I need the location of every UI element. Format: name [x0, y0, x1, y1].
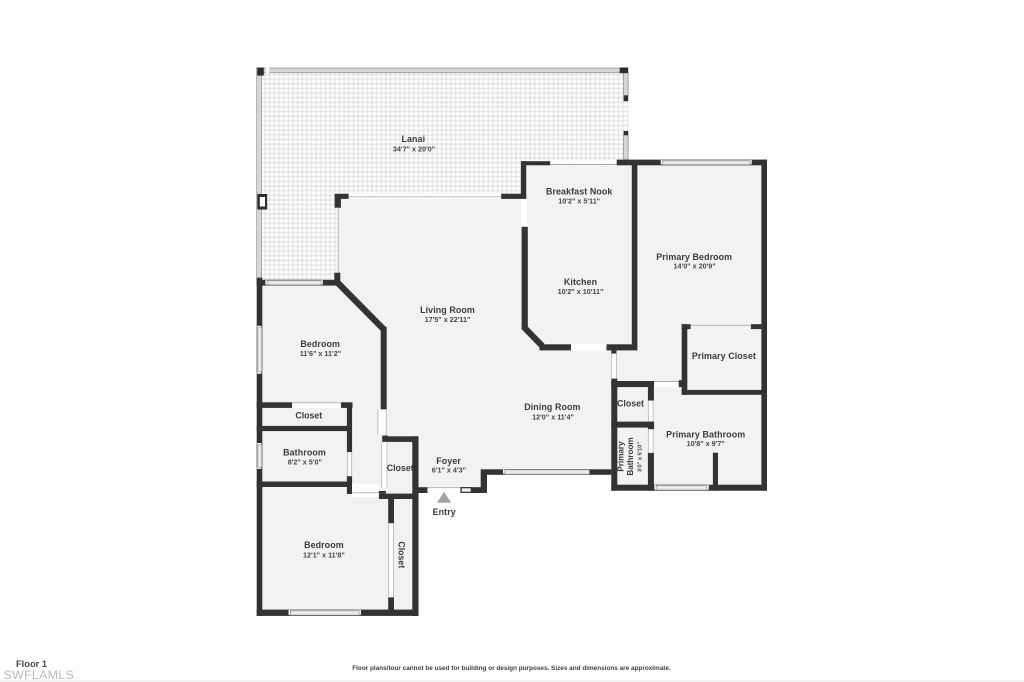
svg-text:Lanai: Lanai	[401, 134, 425, 144]
svg-text:Foyer: Foyer	[436, 456, 461, 466]
svg-text:3'0" x 5'10": 3'0" x 5'10"	[638, 442, 644, 472]
svg-text:SWFLAMLS: SWFLAMLS	[4, 668, 75, 682]
svg-text:Primary: Primary	[616, 441, 625, 472]
svg-text:Primary Bedroom: Primary Bedroom	[656, 252, 732, 262]
svg-text:10'8" x 9'7": 10'8" x 9'7"	[687, 439, 725, 448]
svg-text:Bathroom: Bathroom	[283, 448, 326, 458]
svg-text:8'2" x 5'0": 8'2" x 5'0"	[288, 457, 322, 466]
svg-text:Entry: Entry	[433, 507, 456, 517]
svg-text:Living Room: Living Room	[420, 305, 475, 315]
svg-text:17'5" x 22'11": 17'5" x 22'11"	[425, 315, 471, 324]
svg-text:Breakfast Nook: Breakfast Nook	[546, 186, 613, 196]
svg-text:10'2" x 5'11": 10'2" x 5'11"	[558, 196, 600, 205]
svg-text:Kitchen: Kitchen	[564, 277, 597, 287]
svg-text:Bathroom: Bathroom	[626, 437, 635, 475]
svg-text:10'2" x 10'11": 10'2" x 10'11"	[558, 287, 604, 296]
svg-text:12'1" x 11'8": 12'1" x 11'8"	[303, 550, 345, 559]
svg-text:Closet: Closet	[295, 410, 322, 420]
svg-text:Floor plans/tour cannot be use: Floor plans/tour cannot be used for buil…	[352, 665, 671, 672]
svg-text:Primary Closet: Primary Closet	[692, 351, 756, 361]
svg-text:Dining Room: Dining Room	[524, 402, 580, 412]
svg-text:Closet: Closet	[387, 463, 414, 473]
svg-text:Bedroom: Bedroom	[300, 339, 340, 349]
svg-text:34'7" x 20'0": 34'7" x 20'0"	[393, 145, 435, 154]
svg-text:Bedroom: Bedroom	[304, 540, 344, 550]
svg-text:6'1" x 4'3": 6'1" x 4'3"	[432, 466, 466, 475]
svg-text:Closet: Closet	[617, 398, 644, 408]
svg-text:14'0" x 20'9": 14'0" x 20'9"	[673, 262, 715, 271]
svg-text:11'6" x 11'2": 11'6" x 11'2"	[300, 349, 341, 358]
svg-text:12'0" x 11'4": 12'0" x 11'4"	[532, 412, 574, 421]
svg-text:Closet: Closet	[397, 541, 407, 568]
